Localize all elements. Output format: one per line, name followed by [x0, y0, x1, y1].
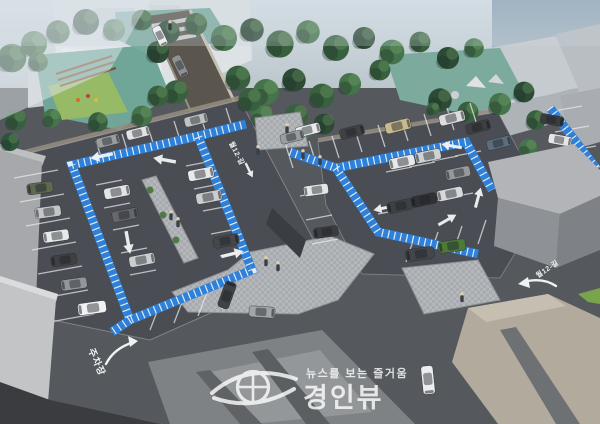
watermark-tagline: 뉴스를 보는 즐거움 [306, 366, 408, 380]
parking-lot-aerial-rendering: 월12-길 월12-길 주차장 뉴스를 보는 즐거움 경인뷰 [0, 0, 600, 424]
pedestrian [176, 217, 179, 227]
car [249, 306, 276, 319]
watermark-brand: 경인뷰 [303, 383, 384, 413]
pedestrian [301, 149, 304, 159]
pedestrian [256, 145, 259, 155]
pedestrian [168, 20, 171, 30]
pedestrian [318, 155, 321, 165]
pedestrian [276, 261, 279, 271]
pedestrian [169, 210, 172, 220]
pedestrian [264, 256, 267, 266]
haze [0, 0, 600, 46]
pedestrian [285, 123, 288, 133]
pedestrian [460, 292, 463, 302]
building-right-mid [488, 144, 600, 268]
